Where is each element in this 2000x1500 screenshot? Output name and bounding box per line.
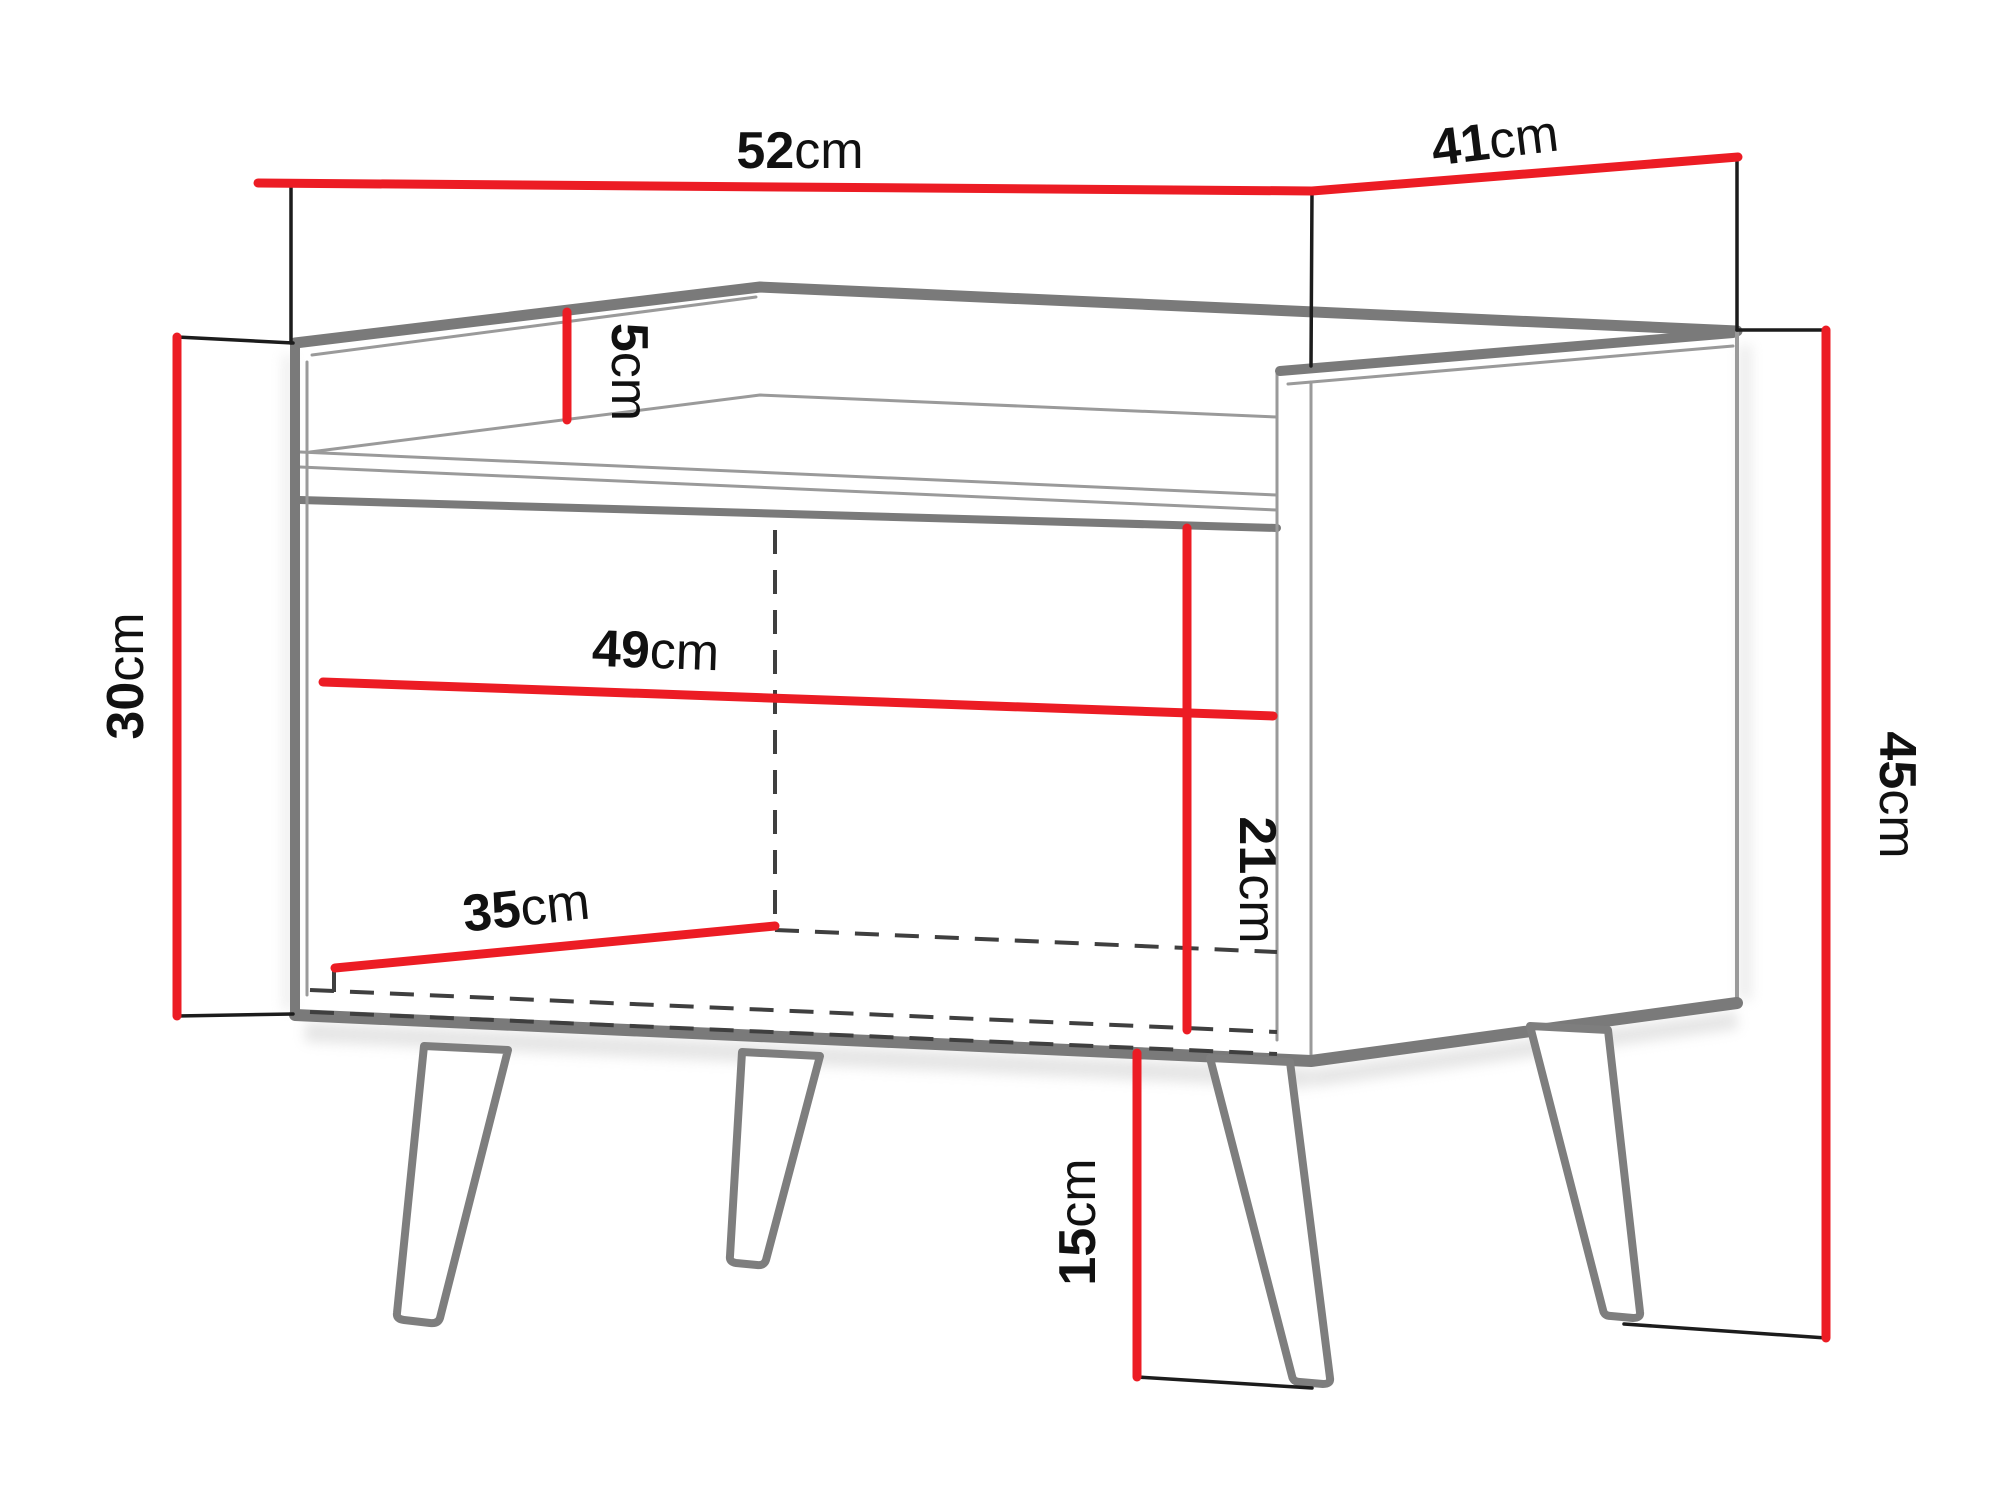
diagram-canvas: 52cm 41cm 5cm 30cm 49cm 21cm 35cm 45cm 1… bbox=[0, 0, 2000, 1500]
dimension-labels: 52cm 41cm 5cm 30cm 49cm 21cm 35cm 45cm 1… bbox=[97, 105, 1926, 1286]
furniture-outline bbox=[295, 287, 1737, 1061]
label-outer-depth: 41cm bbox=[1428, 105, 1561, 178]
ext-carcass-height-top bbox=[177, 337, 293, 343]
hidden-lines bbox=[310, 530, 1277, 1054]
shadow-group bbox=[288, 345, 1745, 1078]
label-outer-width: 52cm bbox=[736, 122, 863, 180]
leg-back-left bbox=[730, 1052, 820, 1265]
dim-line-outer-width bbox=[258, 183, 1312, 191]
leg-back-right bbox=[1530, 1026, 1640, 1318]
label-total-height: 45cm bbox=[1868, 731, 1926, 858]
diagram-page: 52cm 41cm 5cm 30cm 49cm 21cm 35cm 45cm 1… bbox=[0, 0, 2000, 1500]
top-lip-edge bbox=[295, 287, 1737, 343]
legs bbox=[397, 1026, 1640, 1384]
label-top-lip-height: 5cm bbox=[600, 323, 658, 421]
ext-width-depth-corner bbox=[1311, 191, 1312, 366]
top-surface-back-edge bbox=[310, 395, 1277, 452]
floor-back-edge-dashed bbox=[775, 930, 1277, 952]
label-inner-height: 21cm bbox=[1228, 816, 1286, 943]
dim-line-inner-width bbox=[323, 682, 1273, 716]
ext-leg-height-bottom bbox=[1137, 1377, 1312, 1388]
label-inner-width: 49cm bbox=[591, 620, 720, 682]
leg-front-right bbox=[1210, 1058, 1330, 1384]
ext-carcass-height-bottom bbox=[177, 1014, 293, 1016]
left-panel-inner-top-edge bbox=[312, 297, 756, 355]
ext-total-height-bottom bbox=[1624, 1324, 1826, 1338]
leg-front-left bbox=[397, 1046, 508, 1323]
label-leg-height: 15cm bbox=[1049, 1158, 1107, 1285]
label-carcass-height: 30cm bbox=[97, 612, 155, 739]
label-inner-depth: 35cm bbox=[460, 873, 593, 944]
